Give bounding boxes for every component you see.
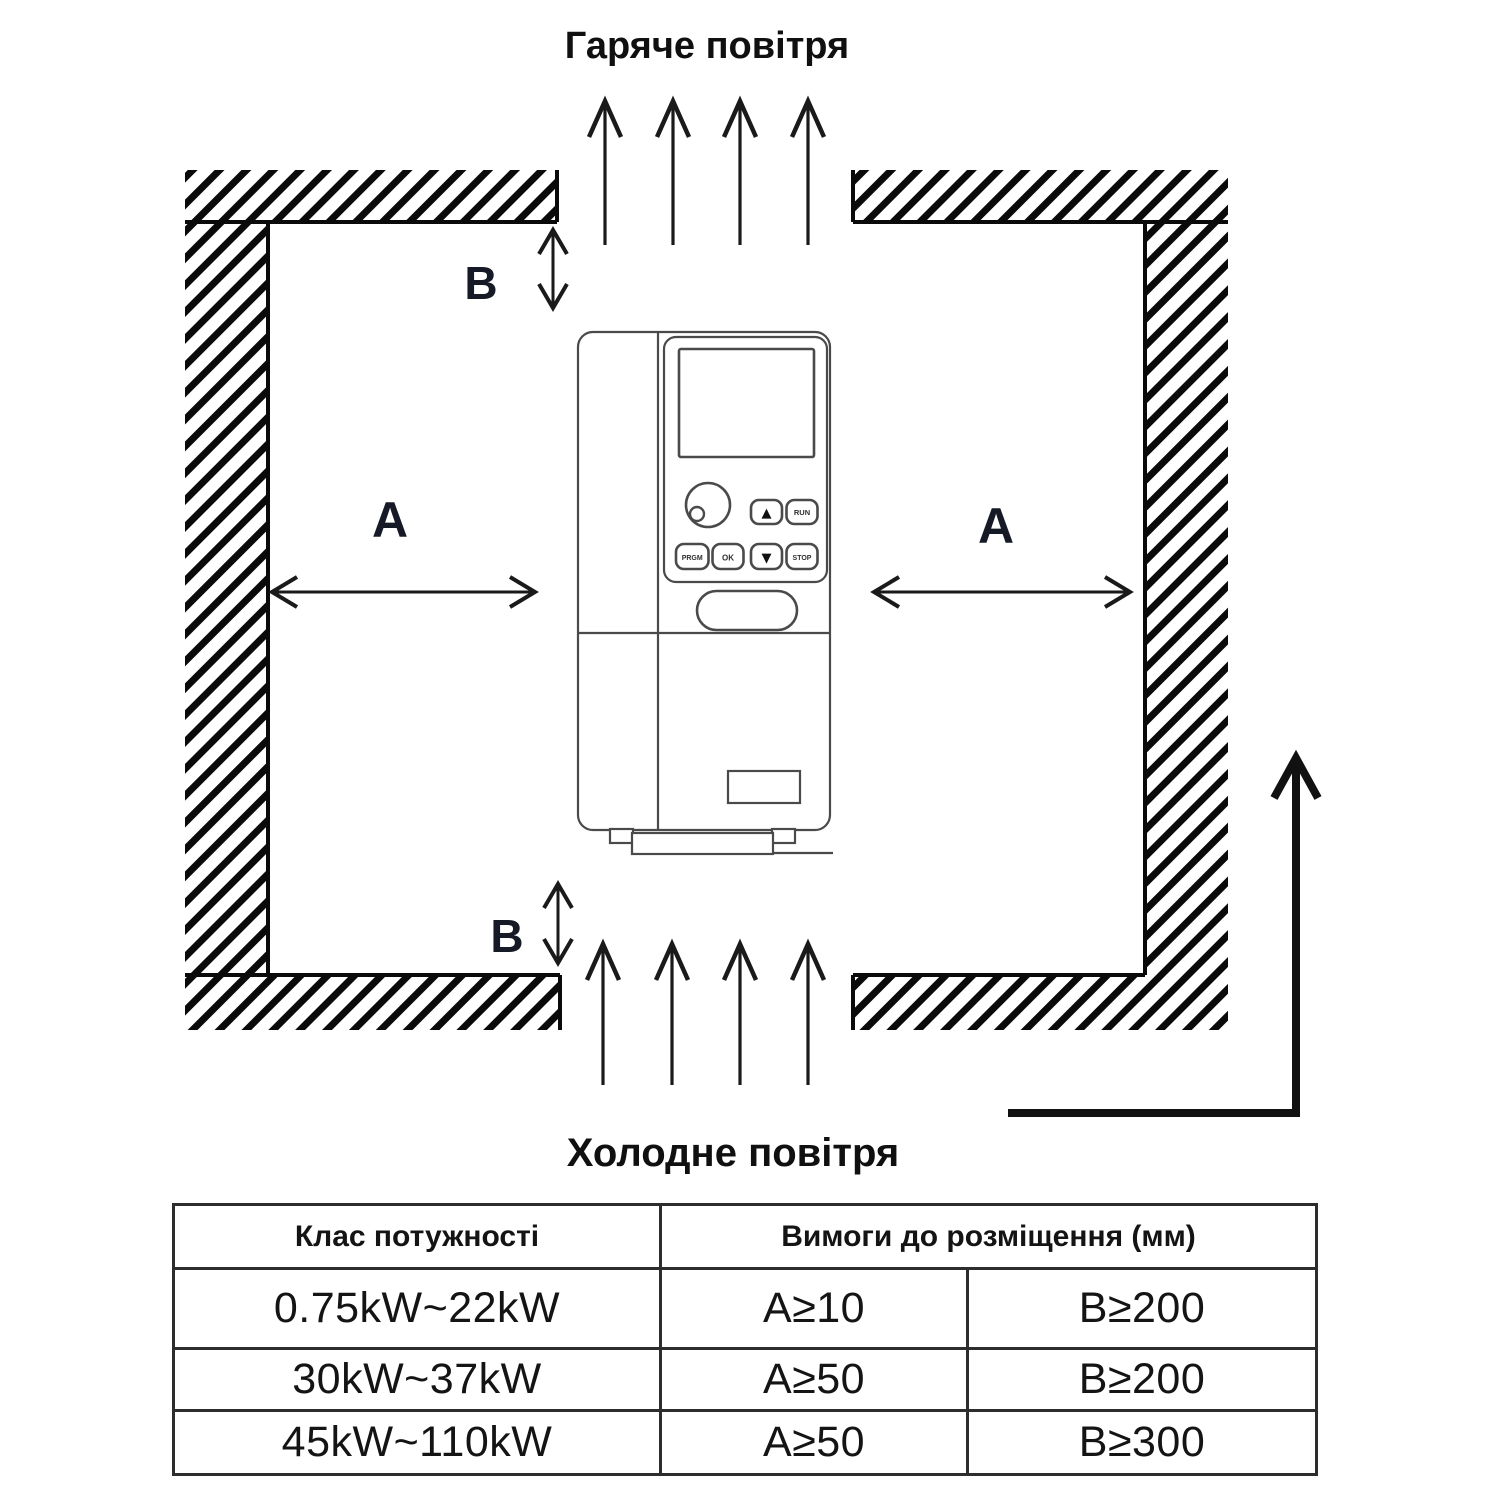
up-arrow-icon [657, 101, 689, 245]
up-arrow-icon [656, 944, 688, 1085]
cold-air-title: Холодне повітря [567, 1131, 899, 1175]
device-foot-right [772, 829, 795, 843]
cell-a-1: A≥50 [661, 1349, 968, 1411]
dim-b-top-label: B [464, 257, 497, 309]
installation-diagram: Гаряче повітря [0, 0, 1500, 1210]
dim-b-bottom-arrow [544, 884, 572, 963]
wall-right [1145, 170, 1228, 1030]
dim-b-bottom-label: B [490, 910, 523, 962]
hot-air-arrows [589, 101, 824, 245]
dim-a-right-arrow [874, 577, 1130, 607]
cell-power-1: 30kW~37kW [174, 1349, 661, 1411]
dim-a-left-arrow [272, 577, 535, 607]
up-arrow-icon [792, 944, 824, 1085]
up-arrow-icon [589, 101, 621, 245]
col-header-power-class: Клас потужності [174, 1205, 661, 1269]
up-arrow-icon [587, 944, 619, 1085]
cell-b-0: B≥200 [968, 1269, 1317, 1349]
device-foot-left [610, 829, 633, 843]
cold-air-arrows [587, 944, 824, 1085]
cell-a-0: A≥10 [661, 1269, 968, 1349]
dim-b-top-arrow [539, 230, 567, 308]
inverter-device: ▲ RUN PRGM OK ▼ STOP [578, 332, 833, 854]
dim-a-right-label: A [978, 498, 1014, 554]
dim-a-left-label: A [372, 492, 408, 548]
page: Гаряче повітря [0, 0, 1500, 1500]
placement-requirements-table: Клас потужності Вимоги до розміщення (мм… [172, 1203, 1318, 1476]
hot-air-title: Гаряче повітря [565, 25, 849, 67]
button-ok-label: OK [722, 554, 734, 563]
up-arrow-icon [724, 101, 756, 245]
up-arrow-icon [724, 944, 756, 1085]
up-arrow-icon [792, 101, 824, 245]
table-row: 45kW~110kW A≥50 B≥300 [174, 1411, 1317, 1475]
down-triangle-icon: ▼ [762, 551, 772, 566]
cell-power-2: 45kW~110kW [174, 1411, 661, 1475]
cell-b-2: B≥300 [968, 1411, 1317, 1475]
cell-power-0: 0.75kW~22kW [174, 1269, 661, 1349]
col-header-placement: Вимоги до розміщення (мм) [661, 1205, 1317, 1269]
wall-floor-right [853, 975, 1145, 1030]
wall-ceiling-left [185, 170, 557, 222]
button-prgm-label: PRGM [682, 555, 703, 562]
cell-a-2: A≥50 [661, 1411, 968, 1475]
cell-b-1: B≥200 [968, 1349, 1317, 1411]
wall-left [185, 170, 268, 1030]
up-triangle-icon: ▲ [762, 506, 772, 521]
wall-floor-left [185, 975, 560, 1030]
wall-ceiling-right [853, 170, 1228, 222]
table-row: 0.75kW~22kW A≥10 B≥200 [174, 1269, 1317, 1349]
button-stop-label: STOP [793, 555, 812, 562]
button-run-label: RUN [794, 508, 810, 517]
device-base [632, 833, 773, 854]
table-row: 30kW~37kW A≥50 B≥200 [174, 1349, 1317, 1411]
